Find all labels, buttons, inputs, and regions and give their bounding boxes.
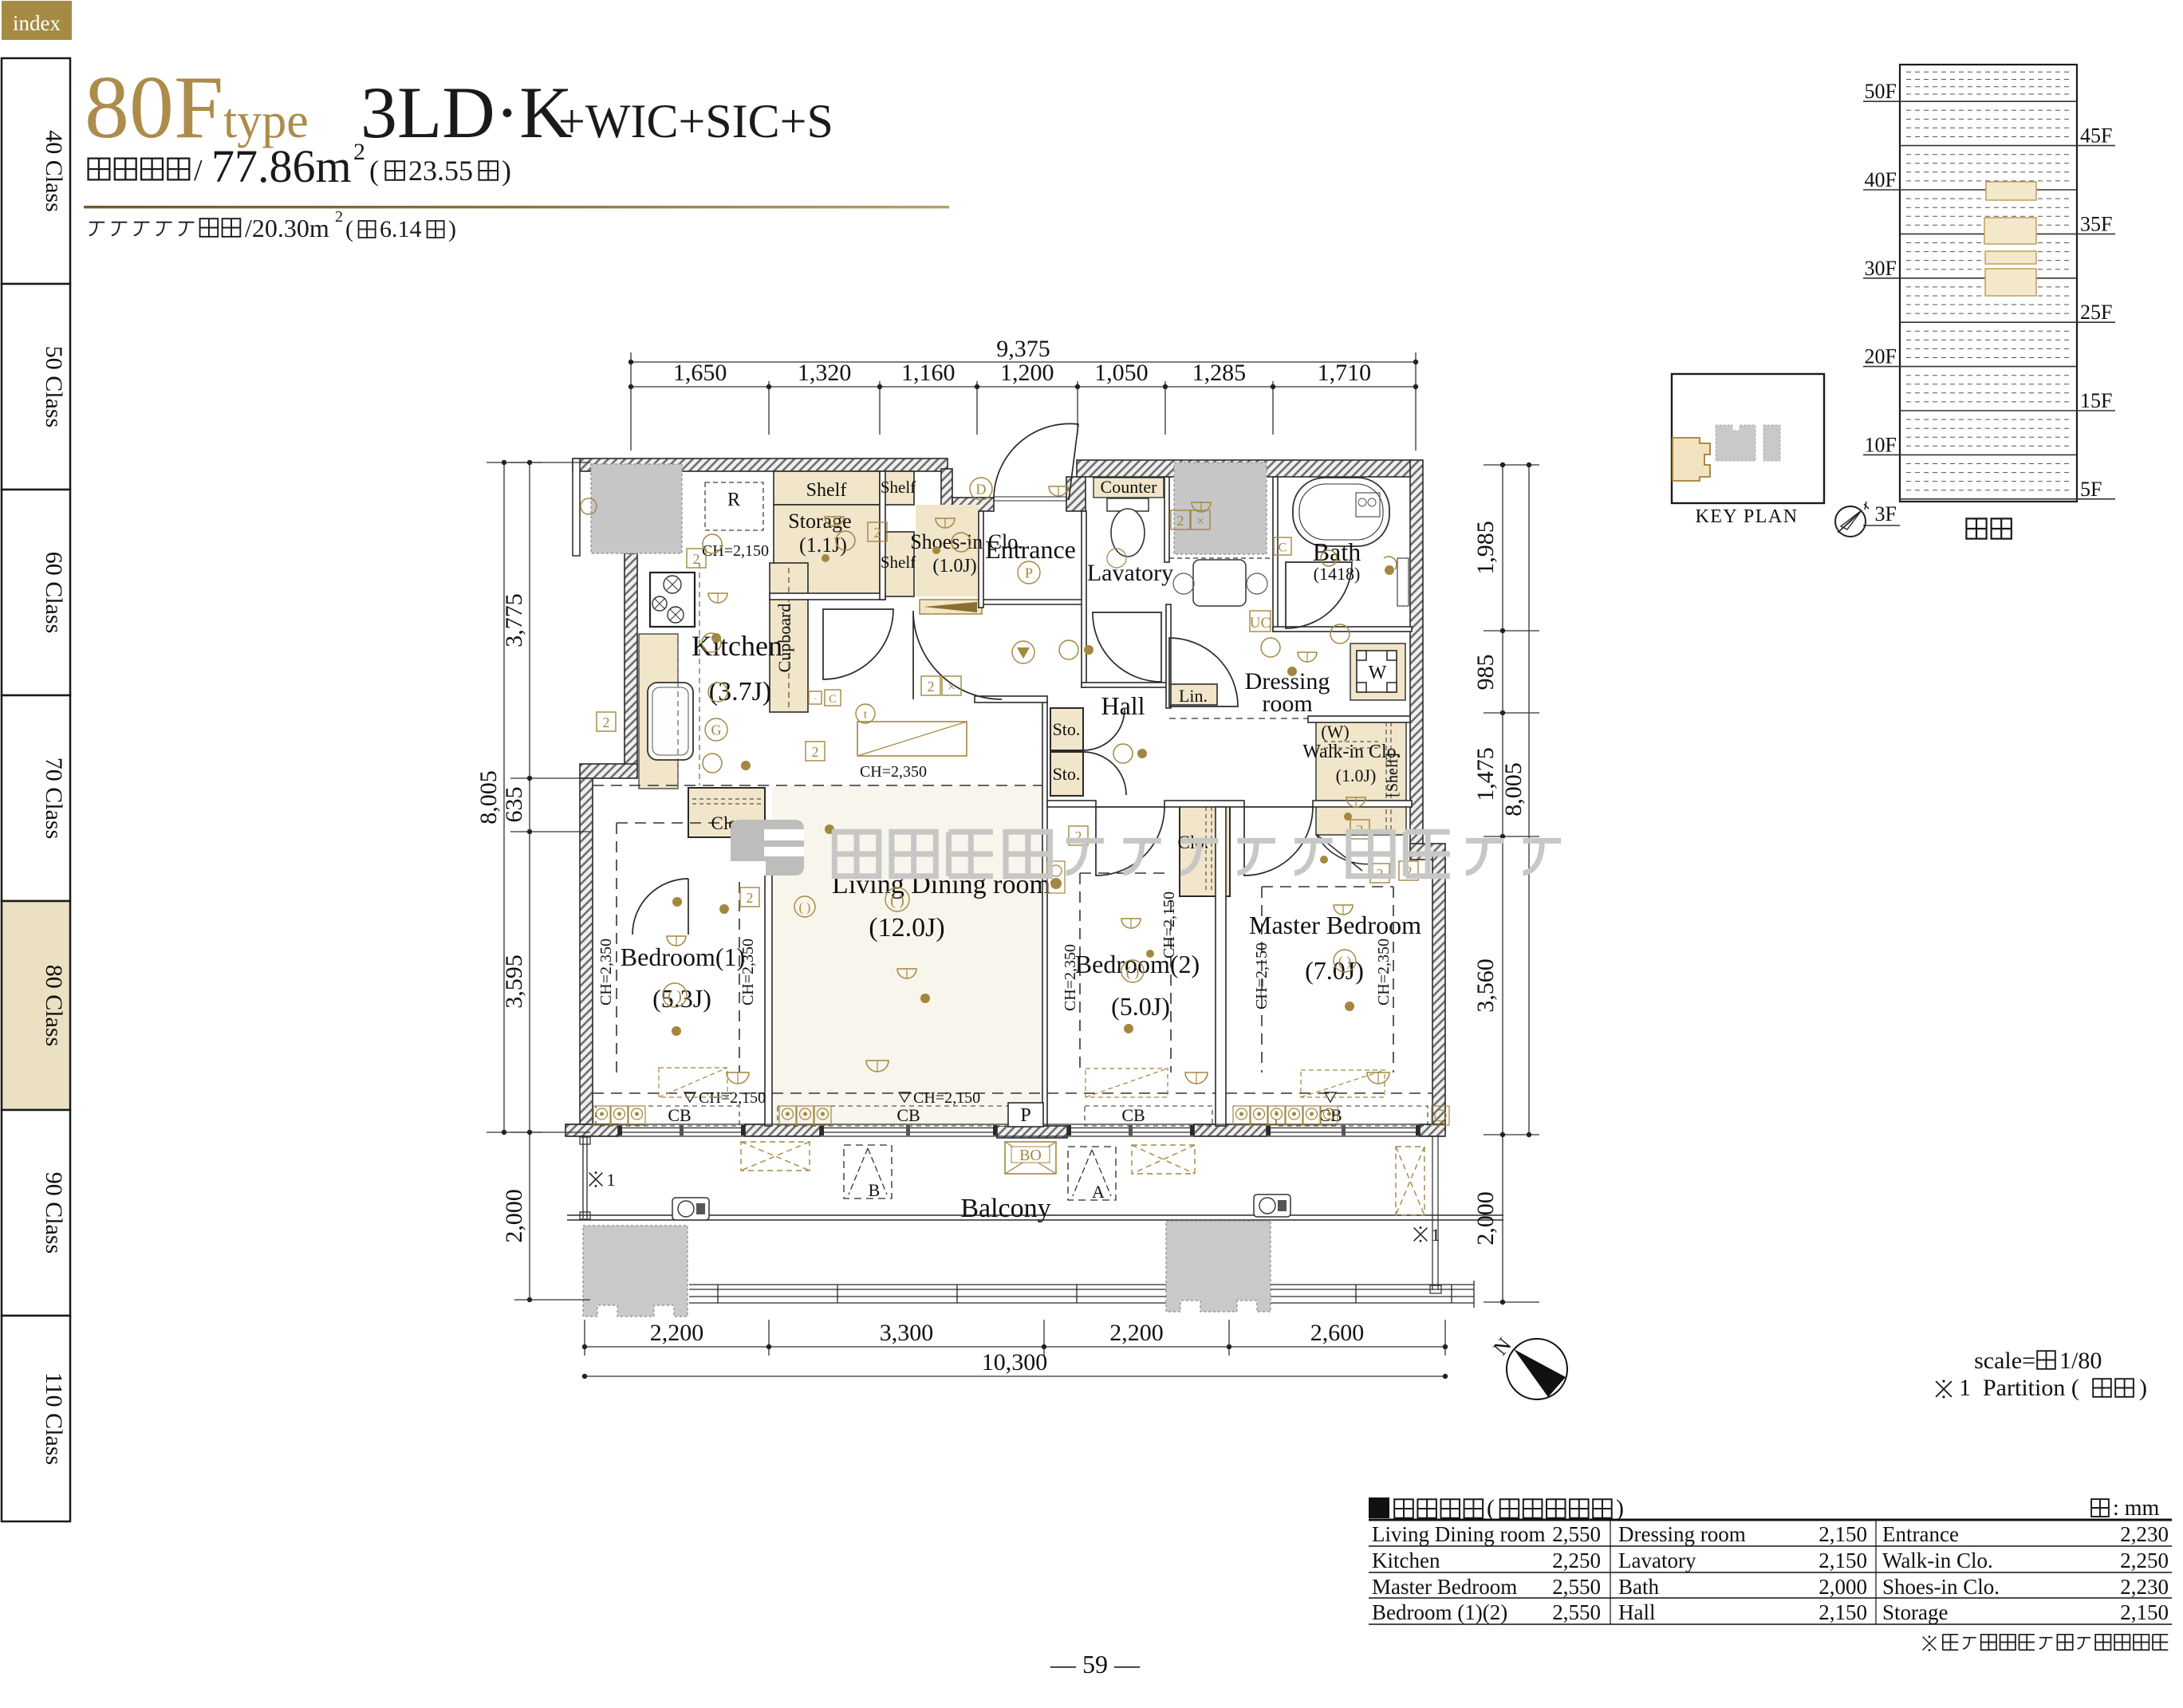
svg-text:2,550: 2,550 xyxy=(1552,1600,1601,1624)
svg-text:3LD·K: 3LD·K xyxy=(361,72,573,153)
svg-text:(: ( xyxy=(345,216,353,242)
svg-text:): ) xyxy=(448,216,456,242)
svg-text:2,000: 2,000 xyxy=(501,1189,527,1243)
svg-text:2,250: 2,250 xyxy=(2120,1549,2169,1572)
svg-text:23.55: 23.55 xyxy=(408,155,473,187)
svg-text:Living Dining room: Living Dining room xyxy=(1372,1522,1546,1546)
svg-text:( ): ( ) xyxy=(890,892,904,909)
svg-text:Entrance: Entrance xyxy=(1882,1522,1959,1546)
svg-text:CB: CB xyxy=(896,1105,920,1125)
svg-text:1,285: 1,285 xyxy=(1192,360,1247,386)
svg-text:Shoes-in Clo.: Shoes-in Clo. xyxy=(1882,1575,2000,1599)
svg-text:1/80: 1/80 xyxy=(2059,1348,2102,1374)
svg-text:5F: 5F xyxy=(2080,478,2102,501)
svg-text:G: G xyxy=(711,722,722,738)
svg-text:1,710: 1,710 xyxy=(1318,360,1372,386)
svg-text:[Shelf]: [Shelf] xyxy=(1384,753,1401,797)
svg-text:CH=2,150: CH=2,150 xyxy=(1253,943,1271,1009)
svg-text:CH=2,150: CH=2,150 xyxy=(913,1089,980,1107)
svg-text:Dressing room: Dressing room xyxy=(1618,1522,1746,1546)
svg-text:2,550: 2,550 xyxy=(1552,1575,1601,1599)
svg-text:index: index xyxy=(13,11,61,35)
svg-text:2,150: 2,150 xyxy=(1819,1600,1867,1624)
svg-text:90 Class: 90 Class xyxy=(41,1172,67,1254)
svg-text:2,150: 2,150 xyxy=(1819,1549,1867,1572)
svg-text:Lin.: Lin. xyxy=(1179,686,1208,706)
svg-text:Shelf: Shelf xyxy=(881,478,916,497)
svg-text:Lavatory: Lavatory xyxy=(1087,560,1173,586)
svg-text:Kitchen: Kitchen xyxy=(1372,1549,1440,1572)
svg-text:(7.0J): (7.0J) xyxy=(1305,956,1364,985)
svg-text:80 Class: 80 Class xyxy=(41,965,67,1047)
svg-text:Bath: Bath xyxy=(1618,1575,1659,1599)
svg-text:10,300: 10,300 xyxy=(982,1349,1048,1375)
svg-text:50F: 50F xyxy=(1865,80,1897,103)
svg-text:/: / xyxy=(194,154,203,187)
svg-text:(1.0J): (1.0J) xyxy=(1336,765,1377,785)
svg-text:CH=2,350: CH=2,350 xyxy=(597,939,615,1006)
svg-text:9,375: 9,375 xyxy=(996,336,1050,362)
svg-text:2,150: 2,150 xyxy=(1819,1522,1867,1546)
svg-text:W: W xyxy=(1369,663,1387,683)
svg-text:80F: 80F xyxy=(85,58,223,157)
svg-text:Storage: Storage xyxy=(788,510,851,533)
svg-text:45F: 45F xyxy=(2080,124,2112,148)
svg-text:110 Class: 110 Class xyxy=(41,1372,67,1465)
svg-text:( ): ( ) xyxy=(1338,953,1352,970)
svg-text:(5.0J): (5.0J) xyxy=(1111,992,1170,1021)
svg-text:2: 2 xyxy=(747,890,754,906)
svg-text:A: A xyxy=(1092,1182,1105,1202)
svg-text:( ): ( ) xyxy=(799,901,811,915)
svg-text:D: D xyxy=(976,481,987,497)
svg-text:/20.30m: /20.30m xyxy=(245,214,329,242)
svg-text:BO: BO xyxy=(1019,1147,1042,1164)
svg-text:2: 2 xyxy=(928,679,935,695)
svg-text:3,300: 3,300 xyxy=(880,1320,934,1346)
svg-text:Lavatory: Lavatory xyxy=(1618,1549,1696,1572)
svg-text:Sto.: Sto. xyxy=(1053,764,1081,784)
svg-text:UC: UC xyxy=(1250,615,1271,632)
svg-text:( ): ( ) xyxy=(1126,963,1140,980)
svg-text:60 Class: 60 Class xyxy=(41,552,67,634)
svg-text:room: room xyxy=(1262,691,1312,717)
svg-text:635: 635 xyxy=(501,787,527,823)
svg-text:1,050: 1,050 xyxy=(1094,360,1149,386)
svg-text:CH=2,150: CH=2,150 xyxy=(1160,891,1178,958)
svg-text:— 59 —: — 59 — xyxy=(1050,1650,1141,1678)
svg-text:2,000: 2,000 xyxy=(1819,1575,1867,1599)
svg-text:40F: 40F xyxy=(1865,168,1897,191)
svg-text:t: t xyxy=(864,708,868,721)
svg-text:2,000: 2,000 xyxy=(1472,1191,1499,1246)
svg-text:N: N xyxy=(1488,1333,1515,1360)
svg-text:Entrance: Entrance xyxy=(985,535,1076,564)
svg-text:1: 1 xyxy=(1432,1225,1440,1245)
svg-text:Walk-in Clo.: Walk-in Clo. xyxy=(1882,1549,1993,1572)
svg-text:(1.0J): (1.0J) xyxy=(932,556,976,577)
svg-text:70 Class: 70 Class xyxy=(41,758,67,840)
svg-text:15F: 15F xyxy=(2080,389,2112,412)
svg-text:CH=2,350: CH=2,350 xyxy=(1062,944,1079,1011)
svg-text:2,200: 2,200 xyxy=(650,1320,704,1346)
svg-text:Master Bedroom: Master Bedroom xyxy=(1249,911,1421,939)
svg-text:2,150: 2,150 xyxy=(2120,1600,2169,1624)
svg-text:Bedroom(1): Bedroom(1) xyxy=(621,943,745,971)
svg-text:scale=: scale= xyxy=(1974,1348,2035,1374)
svg-text:Hall: Hall xyxy=(1618,1600,1656,1624)
svg-text:×: × xyxy=(1196,513,1204,529)
svg-text:C: C xyxy=(1279,541,1287,555)
svg-text:(W): (W) xyxy=(1321,722,1349,742)
svg-text:Sto.: Sto. xyxy=(1053,719,1081,739)
svg-text:R: R xyxy=(727,490,740,510)
svg-text:6.14: 6.14 xyxy=(380,216,422,242)
svg-text:): ) xyxy=(502,155,511,187)
svg-text:2: 2 xyxy=(1177,513,1184,529)
svg-text:1 Partition (: 1 Partition ( xyxy=(1959,1375,2079,1401)
svg-text:985: 985 xyxy=(1472,655,1499,691)
svg-text:2: 2 xyxy=(353,139,365,165)
svg-text:2: 2 xyxy=(874,525,881,541)
svg-text:3,560: 3,560 xyxy=(1472,958,1499,1013)
svg-text:3,775: 3,775 xyxy=(501,593,527,647)
svg-text:: mm: : mm xyxy=(2113,1496,2160,1521)
svg-text:Bedroom (1)(2): Bedroom (1)(2) xyxy=(1372,1600,1507,1624)
svg-text:Balcony: Balcony xyxy=(960,1194,1050,1223)
svg-text:2: 2 xyxy=(603,714,610,730)
svg-text:P: P xyxy=(1025,565,1033,580)
svg-text:8,005: 8,005 xyxy=(1500,762,1527,817)
svg-text:1,320: 1,320 xyxy=(798,360,852,386)
svg-text:2,200: 2,200 xyxy=(1109,1320,1164,1346)
svg-text:CB: CB xyxy=(1121,1105,1145,1125)
svg-text:B: B xyxy=(869,1180,881,1200)
svg-text:CH=2,150: CH=2,150 xyxy=(699,1089,766,1107)
svg-text:77.86m: 77.86m xyxy=(211,140,352,192)
svg-text:·: · xyxy=(814,693,817,704)
svg-text:1,650: 1,650 xyxy=(673,360,727,386)
svg-text:CB: CB xyxy=(668,1105,691,1125)
svg-text:25F: 25F xyxy=(2080,301,2112,324)
svg-text:2,250: 2,250 xyxy=(1552,1549,1601,1572)
svg-text:(12.0J): (12.0J) xyxy=(869,913,944,943)
svg-text:2: 2 xyxy=(812,744,819,760)
svg-text:1,985: 1,985 xyxy=(1472,521,1499,575)
svg-text:CH=2,350: CH=2,350 xyxy=(1375,939,1393,1006)
svg-text:35F: 35F xyxy=(2080,212,2112,235)
svg-text:CH=2,350: CH=2,350 xyxy=(860,763,927,781)
svg-text:3F: 3F xyxy=(1875,502,1897,525)
svg-text:KEY PLAN: KEY PLAN xyxy=(1695,506,1798,527)
svg-text:×: × xyxy=(948,679,956,695)
svg-text:): ) xyxy=(1616,1495,1624,1521)
svg-text:2,230: 2,230 xyxy=(2120,1522,2169,1546)
svg-text:(: ( xyxy=(369,155,379,187)
svg-text:1,200: 1,200 xyxy=(1000,360,1054,386)
svg-text:( ): ( ) xyxy=(668,988,681,1005)
svg-text:1,160: 1,160 xyxy=(901,360,956,386)
svg-text:1,475: 1,475 xyxy=(1472,747,1499,801)
svg-text:Storage: Storage xyxy=(1882,1600,1948,1624)
svg-text:40 Class: 40 Class xyxy=(41,130,67,212)
svg-text:1: 1 xyxy=(607,1170,616,1190)
svg-text:(1.1J): (1.1J) xyxy=(799,533,847,557)
svg-text:(5.3J): (5.3J) xyxy=(652,984,711,1013)
svg-text:): ) xyxy=(2139,1375,2147,1401)
svg-text:2,550: 2,550 xyxy=(1552,1522,1601,1546)
svg-text:P: P xyxy=(1020,1105,1030,1126)
svg-text:Master Bedroom: Master Bedroom xyxy=(1372,1575,1517,1599)
svg-text:2,230: 2,230 xyxy=(2120,1575,2169,1599)
svg-text:+WIC+SIC+S: +WIC+SIC+S xyxy=(558,95,833,148)
svg-text:CH=2,350: CH=2,350 xyxy=(739,939,757,1006)
svg-text:Shelf: Shelf xyxy=(881,553,916,572)
svg-text:50 Class: 50 Class xyxy=(41,346,67,428)
svg-text:Hall: Hall xyxy=(1101,691,1145,720)
svg-text:2: 2 xyxy=(693,551,700,567)
svg-text:20F: 20F xyxy=(1865,345,1897,368)
svg-text:Counter: Counter xyxy=(1101,477,1158,497)
svg-text:2,600: 2,600 xyxy=(1310,1320,1365,1346)
svg-text:8,005: 8,005 xyxy=(475,770,502,824)
svg-text:10F: 10F xyxy=(1865,433,1897,456)
svg-text:Cupboard: Cupboard xyxy=(774,604,794,673)
svg-text:Bath: Bath xyxy=(1313,537,1361,566)
svg-text:C: C xyxy=(829,693,837,706)
svg-text:(: ( xyxy=(1487,1495,1495,1521)
svg-text:30F: 30F xyxy=(1865,257,1897,280)
svg-text:3,595: 3,595 xyxy=(501,954,527,1009)
svg-text:(1418): (1418) xyxy=(1314,564,1361,584)
svg-text:CH=2,150: CH=2,150 xyxy=(702,542,769,560)
svg-text:2: 2 xyxy=(335,208,343,226)
svg-text:Shelf: Shelf xyxy=(806,480,847,501)
